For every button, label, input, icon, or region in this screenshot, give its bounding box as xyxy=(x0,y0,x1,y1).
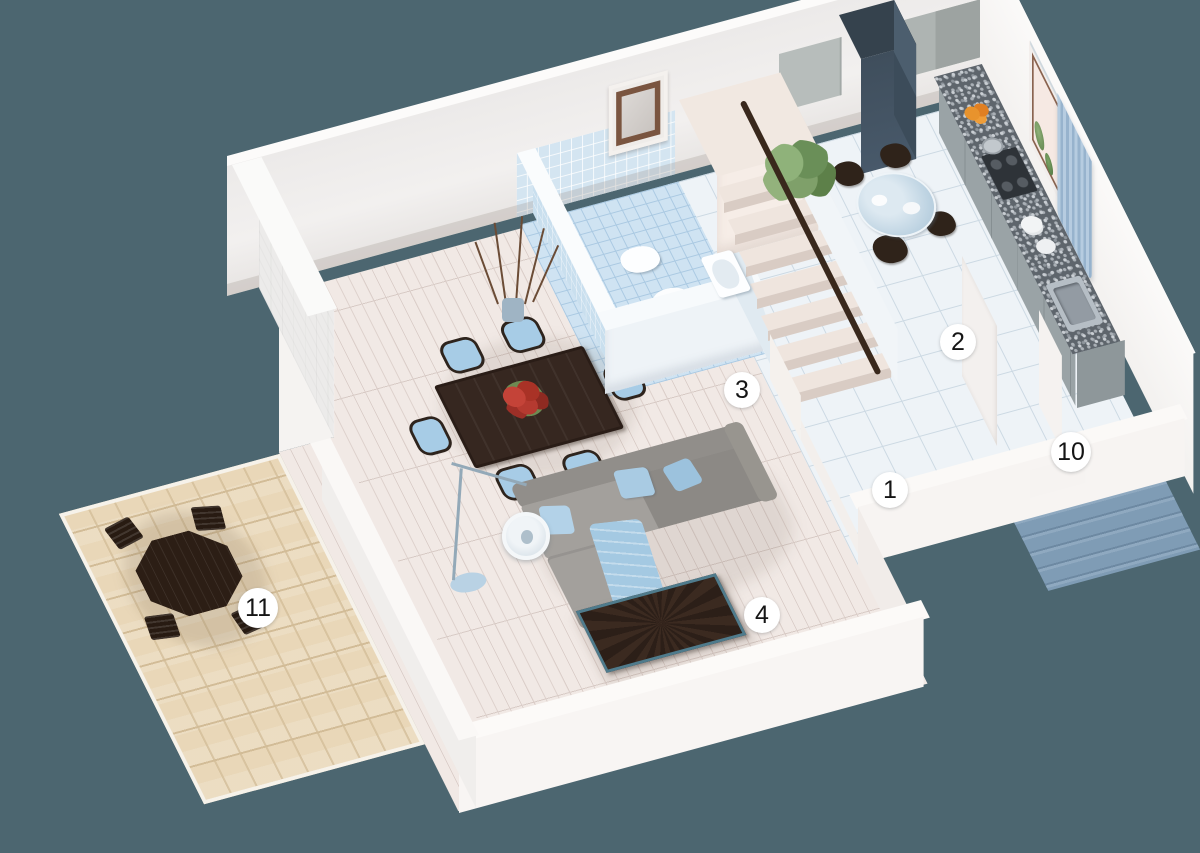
terrace-chair xyxy=(190,505,226,531)
floor-lamp-shade xyxy=(502,512,550,560)
windowsill-plant-1 xyxy=(1035,115,1045,156)
wall-window-frame xyxy=(616,80,660,146)
fruit-bowl-oranges xyxy=(960,100,997,127)
stacked-dishes xyxy=(1018,214,1046,235)
lamp-bulb xyxy=(521,530,533,544)
room-marker-11[interactable]: 11 xyxy=(238,588,278,628)
windowsill-plant-2 xyxy=(1045,148,1053,180)
sink-basin xyxy=(1052,282,1096,326)
staircase-plant xyxy=(762,140,836,206)
table-plate xyxy=(869,193,889,208)
table-plate xyxy=(900,200,922,216)
stacked-dishes xyxy=(1033,237,1058,256)
room-marker-4[interactable]: 4 xyxy=(744,597,780,633)
room-marker-3[interactable]: 3 xyxy=(724,372,760,408)
branch-plant-pot xyxy=(502,298,524,322)
room-marker-2[interactable]: 2 xyxy=(940,324,976,360)
room-marker-1[interactable]: 1 xyxy=(872,472,908,508)
room-marker-10[interactable]: 10 xyxy=(1051,432,1091,472)
floorplan-scene: 1 2 3 4 10 11 xyxy=(0,0,1200,853)
